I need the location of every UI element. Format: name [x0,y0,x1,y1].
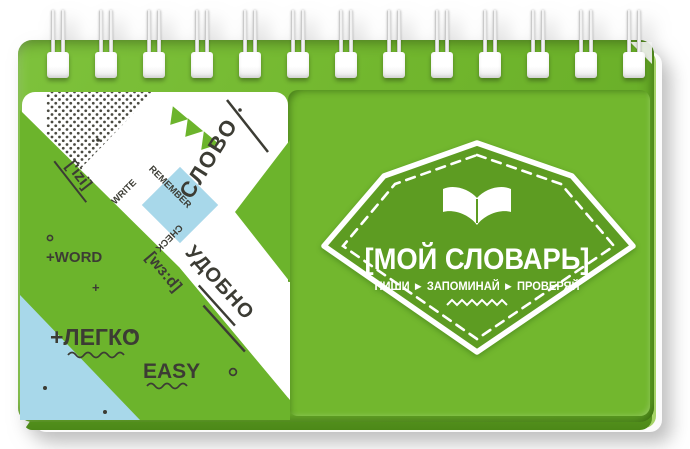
dictionary-badge: [МОЙ СЛОВАРЬ] ПИШИ ► ЗАПОМИНАЙ ► ПРОВЕРЯ… [310,133,650,361]
spiral-loop [574,0,598,84]
badge-title: [МОЙ СЛОВАРЬ] [365,242,590,276]
spiral-notebook: WRITE REMEMBER CHECK СЛОВО ['izi] +WORD … [0,0,690,449]
easy-en-label: EASY [143,360,200,383]
spiral-loop [238,0,262,84]
spiral-binding [46,0,646,84]
spiral-loop [622,0,646,84]
spiral-loop [430,0,454,84]
spiral-loop [46,0,70,84]
spiral-loop [190,0,214,84]
spiral-loop [382,0,406,84]
notebook-product-photo: WRITE REMEMBER CHECK СЛОВО ['izi] +WORD … [0,0,690,449]
spiral-loop [334,0,358,84]
spiral-loop [94,0,118,84]
spiral-loop [286,0,310,84]
legko-label: +ЛЕГКО [50,324,140,350]
svg-text:+: + [92,280,100,295]
word-en-label: +WORD [46,249,102,266]
spiral-loop [526,0,550,84]
spiral-loop [142,0,166,84]
spiral-loop [478,0,502,84]
left-design-card: WRITE REMEMBER CHECK СЛОВО ['izi] +WORD … [20,90,290,420]
badge-subtitle: ПИШИ ► ЗАПОМИНАЙ ► ПРОВЕРЯЙ [375,280,580,293]
